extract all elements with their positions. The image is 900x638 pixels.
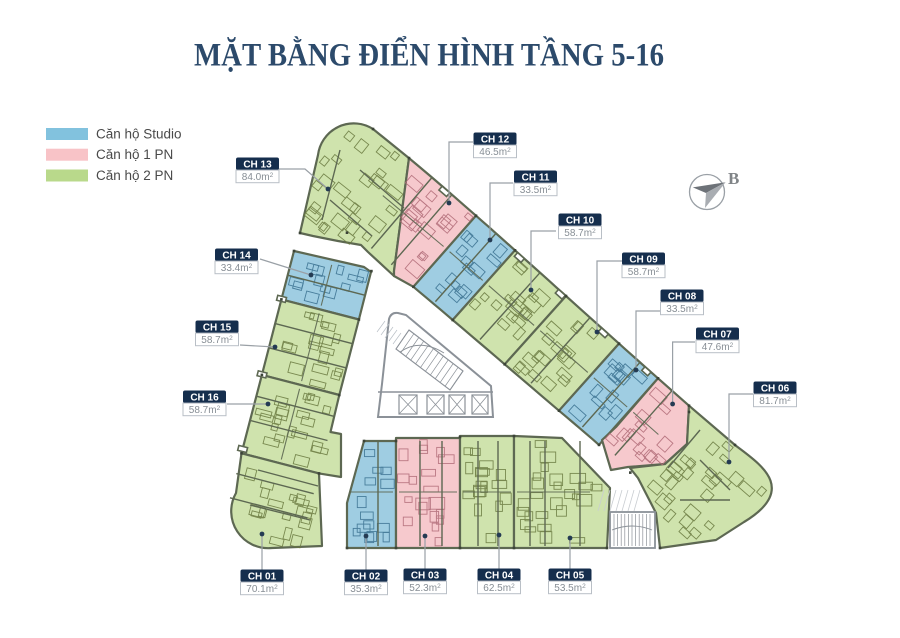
- svg-text:Căn hộ 2 PN: Căn hộ 2 PN: [96, 168, 173, 183]
- svg-text:47.6m2: 47.6m2: [702, 342, 734, 353]
- svg-text:CH 06: CH 06: [761, 383, 790, 394]
- svg-text:Căn hộ Studio: Căn hộ Studio: [96, 127, 182, 142]
- svg-text:46.5m2: 46.5m2: [479, 147, 511, 158]
- svg-text:70.1m2: 70.1m2: [246, 584, 278, 595]
- svg-text:81.7m2: 81.7m2: [759, 396, 791, 407]
- svg-text:CH 15: CH 15: [203, 322, 232, 333]
- svg-text:CH 12: CH 12: [481, 134, 510, 145]
- svg-text:CH 13: CH 13: [243, 159, 272, 170]
- svg-text:CH 05: CH 05: [556, 570, 585, 581]
- svg-text:58.7m2: 58.7m2: [564, 228, 596, 239]
- svg-text:CH 08: CH 08: [668, 291, 697, 302]
- svg-text:CH 10: CH 10: [566, 215, 595, 226]
- svg-text:84.0m2: 84.0m2: [242, 172, 274, 183]
- svg-text:CH 07: CH 07: [703, 329, 732, 340]
- svg-text:CH 01: CH 01: [248, 571, 277, 582]
- svg-text:CH 03: CH 03: [411, 570, 440, 581]
- svg-text:MẶT BẰNG ĐIỂN HÌNH TẦNG 5-16: MẶT BẰNG ĐIỂN HÌNH TẦNG 5-16: [194, 35, 664, 74]
- svg-text:52.3m2: 52.3m2: [409, 583, 441, 594]
- svg-text:33.5m2: 33.5m2: [666, 304, 698, 315]
- svg-text:CH 09: CH 09: [629, 254, 658, 265]
- svg-text:CH 11: CH 11: [522, 172, 550, 183]
- svg-text:CH 04: CH 04: [485, 570, 514, 581]
- svg-text:CH 02: CH 02: [352, 571, 381, 582]
- svg-text:CH 14: CH 14: [222, 250, 251, 261]
- svg-text:33.5m2: 33.5m2: [520, 185, 552, 196]
- svg-text:33.4m2: 33.4m2: [221, 263, 253, 274]
- svg-text:CH 16: CH 16: [190, 392, 219, 403]
- svg-text:Căn hộ 1 PN: Căn hộ 1 PN: [96, 147, 173, 162]
- svg-text:53.5m2: 53.5m2: [554, 583, 586, 594]
- svg-text:35.3m2: 35.3m2: [350, 584, 382, 595]
- svg-text:58.7m2: 58.7m2: [628, 267, 660, 278]
- svg-text:58.7m2: 58.7m2: [189, 405, 221, 416]
- svg-text:58.7m2: 58.7m2: [201, 335, 233, 346]
- svg-text:B: B: [728, 169, 739, 188]
- svg-text:62.5m2: 62.5m2: [483, 583, 515, 594]
